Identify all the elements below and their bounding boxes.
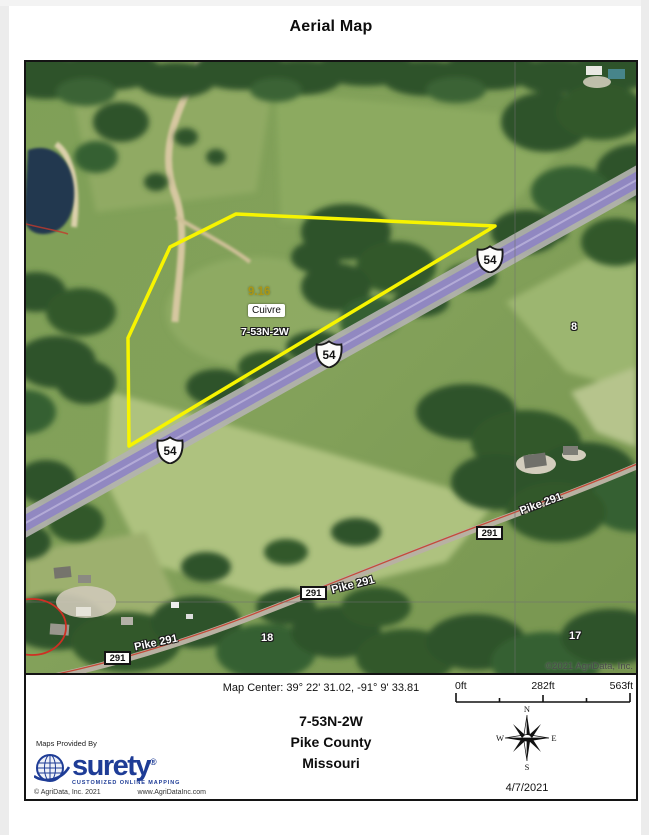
page-edge-top — [0, 0, 649, 6]
svg-text:W: W — [496, 733, 504, 743]
svg-text:S: S — [525, 762, 530, 772]
route-291-box: 291 — [300, 586, 327, 600]
svg-text:0ft: 0ft — [455, 680, 467, 692]
compass-rose-icon: N S W E — [495, 701, 559, 773]
route-291-box: 291 — [104, 651, 131, 665]
svg-text:54: 54 — [163, 445, 177, 458]
map-footer: Map Center: 39° 22' 31.02, -91° 9' 33.81… — [26, 675, 636, 799]
surety-tagline: CUSTOMIZED ONLINE MAPPING — [72, 780, 180, 786]
svg-text:N: N — [524, 704, 530, 714]
compass-block: N S W E 4/7/2021 — [492, 701, 562, 794]
svg-text:282ft: 282ft — [531, 680, 554, 692]
svg-text:54: 54 — [483, 254, 497, 267]
provider-logo-block: Maps Provided By surety® CUSTOMIZED ONLI… — [34, 739, 214, 796]
parcel-township-label: 7-53N-2W — [241, 326, 289, 338]
map-sheet-frame: 9.16 Cuivre 7-53N-2W 54 54 54 291 291 29… — [24, 60, 638, 801]
svg-text:54: 54 — [322, 349, 336, 362]
surety-globe-icon — [34, 751, 70, 785]
section-number: 18 — [261, 632, 273, 644]
section-number: 17 — [569, 630, 581, 642]
map-date: 4/7/2021 — [492, 782, 562, 794]
page-title: Aerial Map — [24, 18, 638, 36]
svg-text:563ft: 563ft — [610, 680, 633, 692]
surety-logo-text: surety® — [72, 749, 180, 779]
us-54-shield: 54 — [155, 435, 185, 464]
svg-text:E: E — [551, 733, 556, 743]
route-291-box: 291 — [476, 526, 503, 540]
provided-by-label: Maps Provided By — [36, 739, 214, 748]
map-copyright: ©2021 AgriData, Inc. — [545, 661, 633, 672]
us-54-shield: 54 — [475, 244, 505, 273]
page-edge-right — [641, 0, 649, 835]
footer-copyright: © AgriData, Inc. 2021 — [34, 789, 101, 796]
us-54-shield: 54 — [314, 339, 344, 368]
footer-website: www.AgriDataInc.com — [138, 789, 206, 796]
parcel-acreage-label: 9.16 — [248, 286, 270, 298]
map-center-coordinates: Map Center: 39° 22' 31.02, -91° 9' 33.81 — [196, 682, 446, 694]
section-number: 8 — [571, 321, 577, 333]
registered-mark: ® — [150, 757, 157, 767]
parcel-name-label: Cuivre — [248, 304, 285, 317]
page-edge-left — [0, 0, 9, 835]
aerial-map: 9.16 Cuivre 7-53N-2W 54 54 54 291 291 29… — [26, 62, 636, 675]
